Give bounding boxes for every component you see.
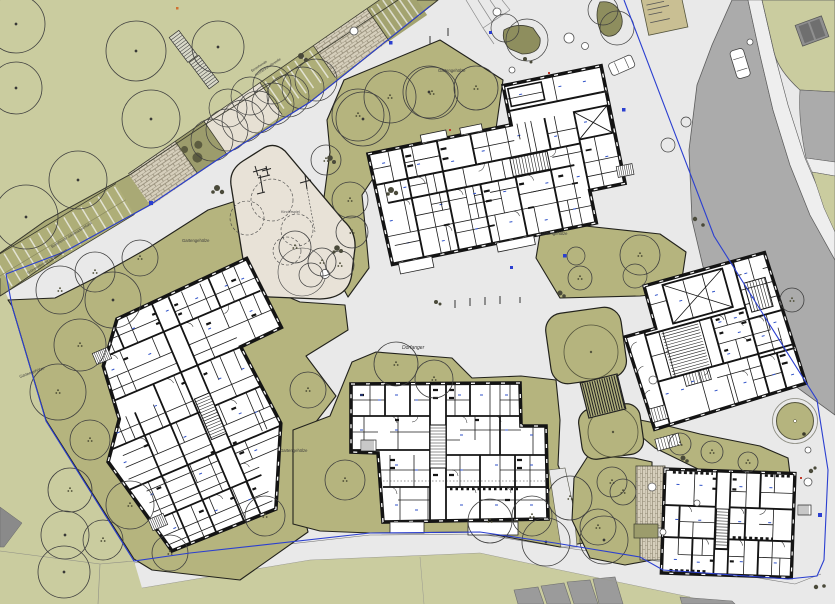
svg-text:Dorfanger: Dorfanger [402, 345, 425, 351]
svg-text:Gartengehölze: Gartengehölze [438, 68, 466, 73]
svg-text:Gartengehölze: Gartengehölze [280, 448, 308, 453]
svg-text:Kinderspiel: Kinderspiel [281, 210, 300, 214]
svg-text:Gartengehölze: Gartengehölze [540, 231, 568, 236]
svg-text:Gartengehölze: Gartengehölze [182, 238, 210, 243]
